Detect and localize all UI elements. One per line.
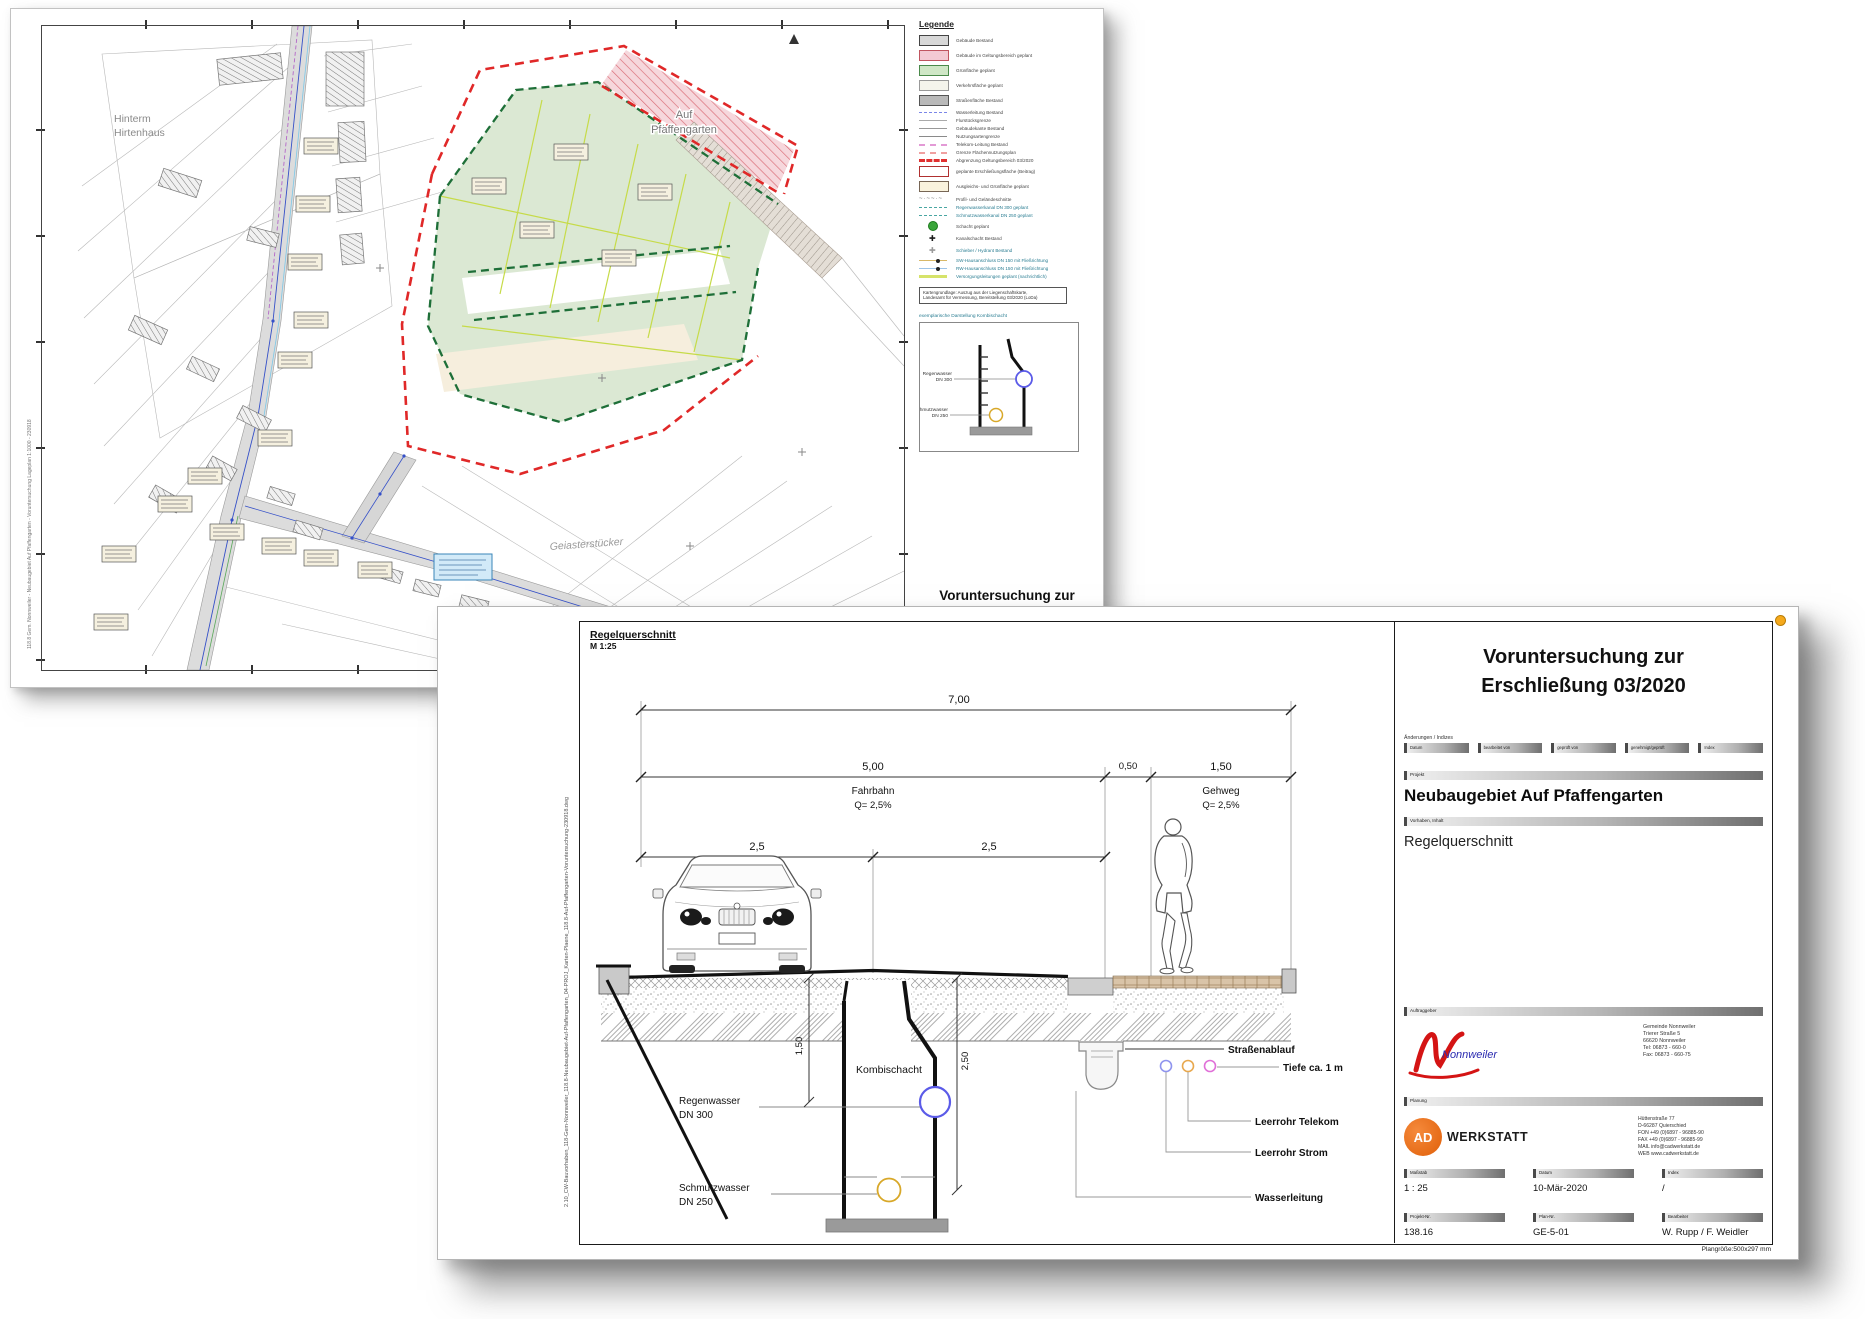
legend-swatch-icon: [919, 152, 949, 154]
aenderungen-cells: Datumbearbeitet vongeprüft vongenehmigt/…: [1404, 743, 1763, 753]
access-road-stub: [342, 452, 416, 543]
legend-swatch-icon: [919, 136, 949, 137]
legend-item-label: Schacht geplant: [956, 224, 989, 229]
auftraggeber-header-bar: Auftraggeber: [1404, 1007, 1763, 1016]
titleblock-field: Maßstab1 : 25: [1404, 1169, 1505, 1194]
aenderungen-label: Änderungen / Indizes: [1404, 735, 1763, 741]
label-telekom: Leerrohr Telekom: [1255, 1117, 1339, 1128]
legend-item: Verkehrsfläche geplant: [919, 80, 1099, 91]
legend-swatch-icon: [919, 207, 949, 208]
label-gehweg: Gehweg: [1202, 786, 1239, 797]
label-schmutzwasser-dn: DN 250: [679, 1197, 713, 1208]
dimension-lines: [641, 710, 1291, 857]
label-regenwasser: Regenwasser: [679, 1096, 741, 1107]
legend-item: geplante Erschließungsfläche (Beitrag): [919, 166, 1099, 177]
pushpin-icon: [1775, 615, 1786, 626]
dim-gehweg: 1,50: [1210, 761, 1231, 773]
legend-item: Gebäude Bestand: [919, 35, 1099, 46]
map-label-hinterm: Hinterm: [114, 113, 151, 125]
detail-sw-dn: DN 250: [932, 413, 949, 419]
legend-items: Gebäude BestandGebäude im Geltungsbereic…: [919, 35, 1099, 279]
dim-total: 7,00: [948, 694, 969, 706]
legend-swatch-icon: [919, 144, 949, 146]
legend-item-label: RW-Hausanschluss DN 150 mit Fließrichtun…: [956, 266, 1048, 271]
dim-half-left: 2,5: [749, 841, 764, 853]
titleblock-field: Plan-Nr.GE-5-01: [1533, 1213, 1634, 1238]
titleblock-field-value: W. Rupp / F. Weidler: [1662, 1227, 1763, 1238]
legend-swatch-icon: [919, 268, 949, 269]
label-fahrbahn: Fahrbahn: [852, 786, 895, 797]
legend-item-label: Flurstücksgrenze: [956, 118, 991, 123]
dim-gutter: 0,50: [1119, 761, 1138, 772]
drawing-file-path: 2.10_CW-Bauvorhaben_118-Gem-Nonnweiler_1…: [564, 647, 570, 1207]
label-schmutzwasser: Schmutzwasser: [679, 1183, 750, 1194]
cad-werkstatt-logo: AD WERKSTATT: [1404, 1118, 1528, 1156]
titleblock-field-value: 1 : 25: [1404, 1183, 1505, 1194]
fields-row-2: Projekt-Nr.138.16Plan-Nr.GE-5-01Bearbeit…: [1404, 1213, 1763, 1238]
legend-item-label: Gebäudekante Bestand: [956, 126, 1004, 131]
map-source-box: Kartengrundlage: Auszug aus der Liegensc…: [919, 287, 1067, 304]
label-strassenablauf: Straßenablauf: [1228, 1045, 1295, 1056]
legend-item: Straßenfläche Bestand: [919, 95, 1099, 106]
detail-regenwasser-pipe: [1016, 371, 1032, 387]
aenderung-cell: bearbeitet von: [1478, 743, 1543, 753]
legend-item: ✚Schieber / Hydrant Bestand: [919, 246, 1099, 255]
legend-item: Flurstücksgrenze: [919, 118, 1099, 123]
vorhaben-header-bar: Vorhaben, Inhalt: [1404, 817, 1763, 826]
legend-swatch-icon: ✚: [919, 246, 949, 255]
legend-swatch-icon: [919, 65, 949, 76]
legend-item-label: Wasserleitung Bestand: [956, 110, 1003, 115]
legend-item-label: geplante Erschließungsfläche (Beitrag): [956, 169, 1035, 174]
legend-item: Schmutzwasserkanal DN 250 geplant: [919, 213, 1099, 218]
legend-swatch-icon: [919, 260, 949, 261]
cross-section-drawing: 7,00 5,00 0,50 1,50 2,5 2,5 Fahrbahn Q= …: [579, 621, 1394, 1243]
dim-half-right: 2,5: [981, 841, 996, 853]
legend-swatch-icon: [919, 159, 949, 162]
main-road: [187, 26, 312, 670]
label-tiefe: Tiefe ca. 1 m: [1283, 1063, 1343, 1074]
siteplan-file-path: 118.8 Gem. Nonnweiler - Neubaugebiet Auf…: [27, 419, 33, 649]
legend-item-label: Telekom-Leitung Bestand: [956, 142, 1008, 147]
pedestrian-figure: [1155, 819, 1193, 974]
titleblock-field: BearbeiterW. Rupp / F. Weidler: [1662, 1213, 1763, 1238]
aenderung-cell: Datum: [1404, 743, 1469, 753]
highlighted-data-box: [434, 554, 492, 580]
plansize-note: Plangröße:500x297 mm: [1488, 1246, 1771, 1253]
legend-item-label: Kanalschacht Bestand: [956, 236, 1002, 241]
label-wasserleitung: Wasserleitung: [1255, 1193, 1323, 1204]
label-fahrbahn-q: Q= 2,5%: [854, 800, 892, 811]
legend-swatch-icon: [919, 50, 949, 61]
schmutzwasser-pipe: [878, 1179, 901, 1202]
legend-swatch-icon: [919, 120, 949, 121]
legend-swatch-icon: [919, 275, 949, 278]
legend-swatch-icon: [919, 95, 949, 106]
legend-swatch-icon: ✚: [919, 234, 949, 243]
legend-item-label: Ausgleichs- und Grünfläche geplant: [956, 184, 1029, 189]
legend-item: Grenze Flächennutzungsplan: [919, 150, 1099, 155]
titleblock-field: Projekt-Nr.138.16: [1404, 1213, 1505, 1238]
legend-item: Nutzungsartengrenze: [919, 134, 1099, 139]
north-mark: [789, 34, 799, 44]
legend-item-label: Verkehrsfläche geplant: [956, 83, 1003, 88]
legend-swatch-icon: [919, 181, 949, 192]
detail-sw-label: Schmutzwasser: [920, 407, 948, 413]
legend-item: Gebäudekante Bestand: [919, 126, 1099, 131]
legend-item-label: Profil- und Geländeschnitte: [956, 197, 1011, 202]
legend-item: Wasserleitung Bestand: [919, 110, 1099, 115]
legend-item: ✚Kanalschacht Bestand: [919, 234, 1099, 243]
detail-rw-label: Regenwasser: [923, 371, 953, 377]
label-gehweg-q: Q= 2,5%: [1202, 800, 1240, 811]
legend-item-label: Nutzungsartengrenze: [956, 134, 1000, 139]
detail-rw-dn: DN 300: [936, 377, 953, 383]
legend-item: Schacht geplant: [919, 221, 1099, 231]
leerrohr-strom-pipe: [1161, 1061, 1172, 1072]
legend-title: Legende: [919, 19, 1099, 29]
projekt-name: Neubaugebiet Auf Pfaffengarten: [1404, 786, 1763, 806]
map-label-hirtenhaus: Hirtenhaus: [114, 127, 165, 139]
legend-item: RW-Hausanschluss DN 150 mit Fließrichtun…: [919, 266, 1099, 271]
legend-item-label: Straßenfläche Bestand: [956, 98, 1003, 103]
dimension-ticks: [636, 705, 1296, 862]
vorhaben-name: Regelquerschnitt: [1404, 834, 1763, 850]
strassenablauf-drain: [1079, 1042, 1224, 1089]
nonnweiler-logo: Nonnweiler: [1404, 1024, 1534, 1080]
legend-item-label: Schieber / Hydrant Bestand: [956, 248, 1012, 253]
legend-item-label: Gebäude Bestand: [956, 38, 993, 43]
legend-item-label: Versorgungsleitungen geplant (nachrichtl…: [956, 274, 1047, 279]
legend-swatch-icon: [919, 112, 949, 113]
siteplan-map: Hinterm Hirtenhaus Auf Pfaffengarten Gei…: [42, 26, 904, 670]
titleblock-field-value: /: [1662, 1183, 1763, 1194]
tiefe-marker-pipe: [1205, 1061, 1216, 1072]
desktop-canvas: Hinterm Hirtenhaus Auf Pfaffengarten Gei…: [0, 0, 1865, 1319]
projekt-header-bar: Projekt: [1404, 771, 1763, 780]
titleblock-divider: [1394, 621, 1395, 1243]
legend-item: Regenwasserkanal DN 300 geplant: [919, 205, 1099, 210]
titleblock-field-value: 138.16: [1404, 1227, 1505, 1238]
legend-item-label: Abgrenzung Geltungsbereich 03/2020: [956, 158, 1033, 163]
title-block: Voruntersuchung zur Erschließung 03/2020…: [1396, 621, 1771, 1243]
map-label-auf: Auf: [676, 109, 693, 121]
legend-item: Gebäude im Geltungsbereich geplant: [919, 50, 1099, 61]
legend-swatch-icon: [919, 215, 949, 216]
dim-depth-150: 1,50: [794, 1037, 805, 1056]
crosssection-sheet: 2.10_CW-Bauvorhaben_118-Gem-Nonnweiler_1…: [437, 606, 1799, 1260]
planung-address: Hüttenstraße 77D-66287 QuierschiedFON +4…: [1638, 1116, 1763, 1158]
map-label-pfaffengarten: Pfaffengarten: [651, 124, 717, 136]
legend-item-label: Gebäude im Geltungsbereich geplant: [956, 53, 1032, 58]
legend-swatch-icon: [919, 80, 949, 91]
car-front-view: [653, 856, 821, 973]
label-regenwasser-dn: DN 300: [679, 1110, 713, 1121]
legend-swatch-icon: ~·~~·~: [919, 196, 949, 202]
auftraggeber-address: Gemeinde NonnweilerTrierer Straße 566620…: [1643, 1024, 1763, 1080]
titleblock-field: Datum10-Mär-2020: [1533, 1169, 1634, 1194]
legend-item: Abgrenzung Geltungsbereich 03/2020: [919, 158, 1099, 163]
legend-item-label: Regenwasserkanal DN 300 geplant: [956, 205, 1028, 210]
map-frame: Hinterm Hirtenhaus Auf Pfaffengarten Gei…: [41, 25, 905, 671]
titleblock-field: Index/: [1662, 1169, 1763, 1194]
legend-panel: Legende Gebäude BestandGebäude im Geltun…: [919, 19, 1099, 452]
legend-item-label: Grünfläche geplant: [956, 68, 995, 73]
aenderung-cell: Index: [1698, 743, 1763, 753]
fields-row-1: Maßstab1 : 25Datum10-Mär-2020Index/: [1404, 1169, 1763, 1194]
legend-item-label: Schmutzwasserkanal DN 250 geplant: [956, 213, 1033, 218]
kombischacht-detail-box: Regenwasser DN 300 Schmutzwasser DN 250: [919, 322, 1079, 452]
legend-item: Grünfläche geplant: [919, 65, 1099, 76]
label-kombischacht: Kombischacht: [856, 1064, 922, 1076]
legend-swatch-icon: [919, 166, 949, 177]
aenderung-cell: genehmigt/geprüft: [1625, 743, 1690, 753]
detail-caption: exemplarische Darstellung Kombischacht: [919, 314, 1099, 319]
legend-swatch-icon: [919, 35, 949, 46]
cad-logo-icon: AD: [1404, 1118, 1442, 1156]
planung-header-bar: Planung: [1404, 1097, 1763, 1106]
titleblock-field-value: GE-5-01: [1533, 1227, 1634, 1238]
road-structure: [596, 966, 1296, 1042]
legend-item: ~·~~·~Profil- und Geländeschnitte: [919, 196, 1099, 202]
siteplan-sheet: Hinterm Hirtenhaus Auf Pfaffengarten Gei…: [10, 8, 1104, 688]
svg-text:Nonnweiler: Nonnweiler: [1442, 1049, 1498, 1061]
legend-swatch-icon: [919, 128, 949, 129]
cad-logo-name: WERKSTATT: [1447, 1130, 1528, 1144]
legend-item-label: Grenze Flächennutzungsplan: [956, 150, 1016, 155]
legend-swatch-icon: [919, 221, 949, 231]
legend-item: Telekom-Leitung Bestand: [919, 142, 1099, 147]
detail-schmutzwasser-pipe: [990, 408, 1003, 421]
label-strom: Leerrohr Strom: [1255, 1148, 1328, 1159]
dim-depth-250: 2,50: [960, 1052, 971, 1071]
regenwasser-pipe: [920, 1087, 950, 1117]
legend-item: Ausgleichs- und Grünfläche geplant: [919, 181, 1099, 192]
legend-item: Versorgungsleitungen geplant (nachrichtl…: [919, 274, 1099, 279]
legend-item: SW-Hausanschluss DN 150 mit Fließrichtun…: [919, 258, 1099, 263]
leerrohr-telekom-pipe: [1183, 1061, 1194, 1072]
titleblock-field-value: 10-Mär-2020: [1533, 1183, 1634, 1194]
plan-title: Voruntersuchung zur Erschließung 03/2020: [1396, 643, 1771, 701]
legend-item-label: SW-Hausanschluss DN 150 mit Fließrichtun…: [956, 258, 1048, 263]
dim-fahrbahn: 5,00: [862, 761, 883, 773]
map-label-geiasterstuecker: Geiasterstücker: [549, 536, 624, 553]
aenderung-cell: geprüft von: [1551, 743, 1616, 753]
